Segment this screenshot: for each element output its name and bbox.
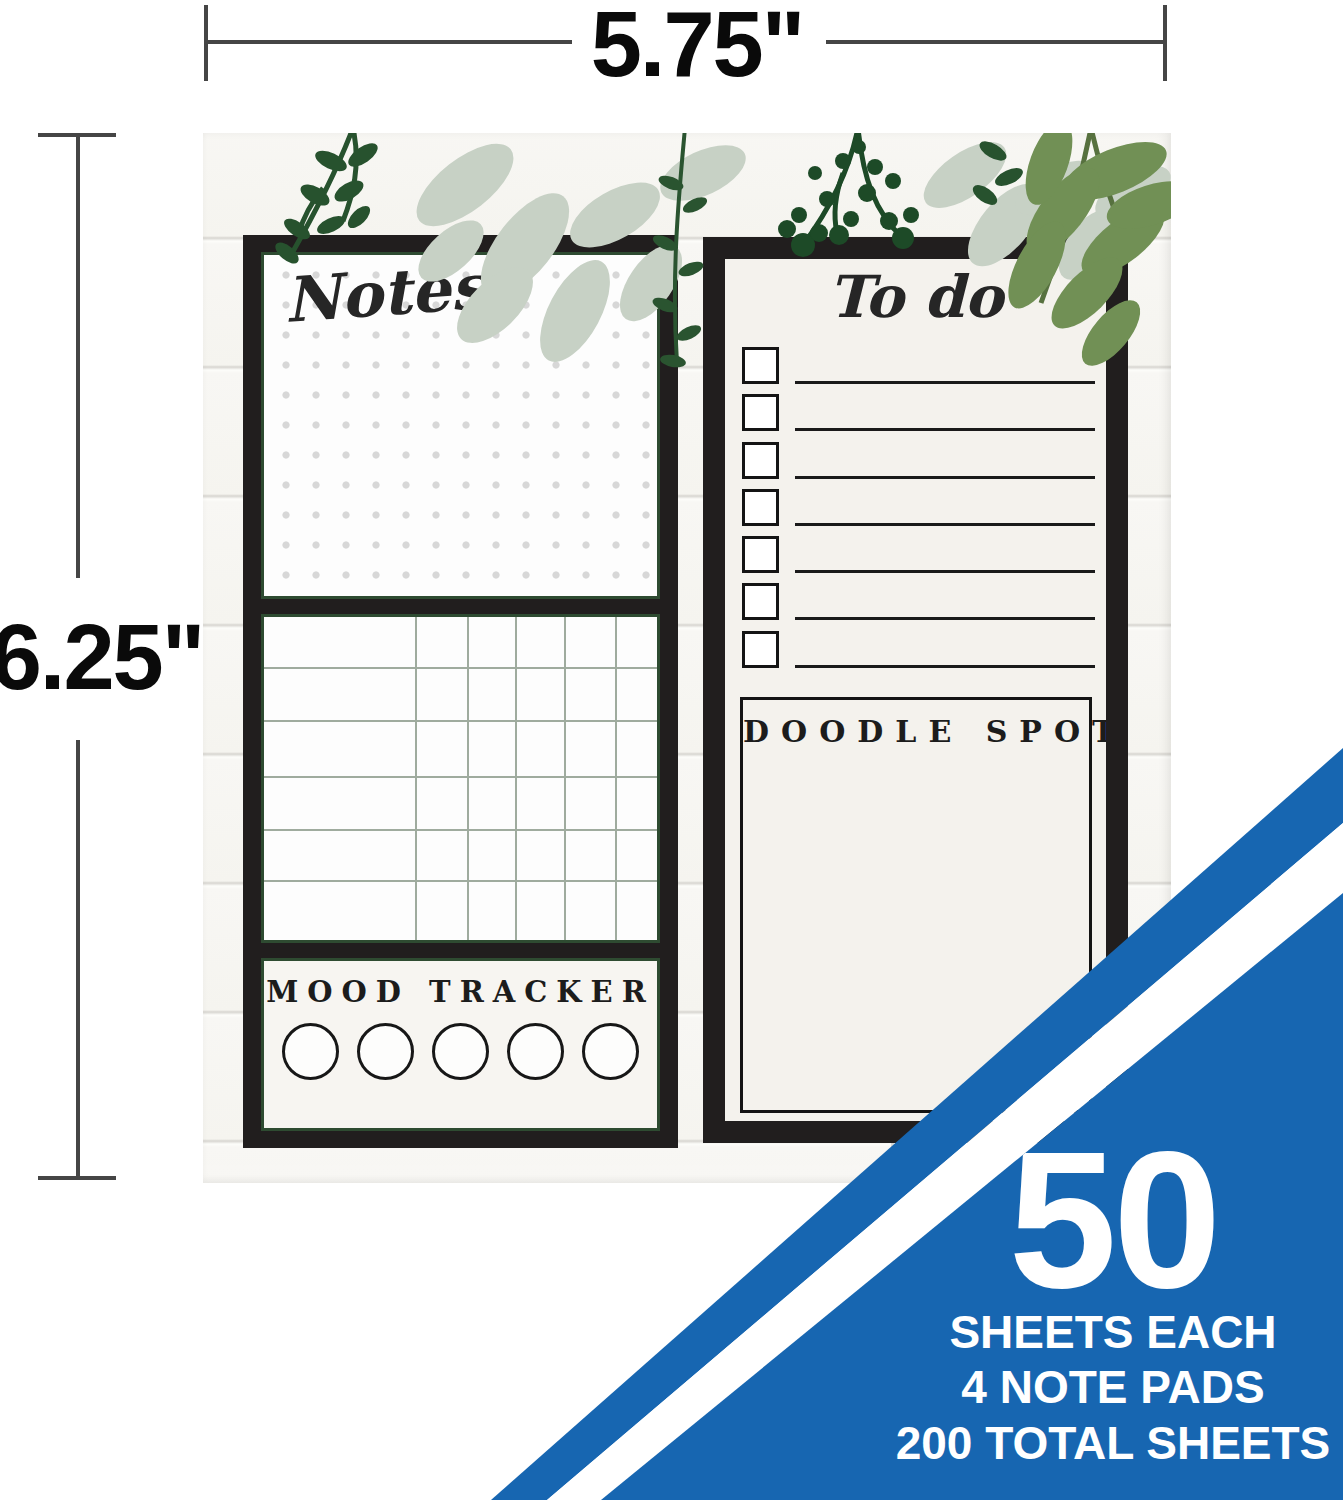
product-image: 5.75" 6.25" Notes MOOD TRACKER To do DOO… <box>0 0 1343 1500</box>
grid-line-vertical <box>564 617 566 940</box>
sage-leaf-cluster-left <box>403 133 754 373</box>
dimension-cap-right <box>1163 5 1167 81</box>
todo-checkbox <box>742 442 779 479</box>
dimension-line <box>826 40 1167 44</box>
dimension-line <box>76 740 80 1179</box>
todo-row <box>725 489 1106 536</box>
mood-circle <box>582 1023 639 1080</box>
todo-row <box>725 536 1106 583</box>
todo-row <box>725 442 1106 489</box>
grid-line-vertical <box>467 617 469 940</box>
todo-write-line <box>795 476 1095 479</box>
todo-checkbox <box>742 489 779 526</box>
beaded-sprig-center-berries <box>778 140 919 257</box>
todo-checkbox <box>742 631 779 668</box>
todo-row <box>725 631 1106 678</box>
dimension-line <box>204 40 572 44</box>
dimension-line <box>76 136 80 578</box>
banner-line-3: 200 TOTAL SHEETS <box>883 1417 1343 1470</box>
todo-checkbox <box>742 536 779 573</box>
todo-checkbox <box>742 583 779 620</box>
greenery-illustration <box>203 133 1171 423</box>
mood-tracker-panel: MOOD TRACKER <box>261 958 660 1131</box>
doodle-spot-title: DOODLE SPOT <box>743 714 1089 749</box>
todo-write-line <box>795 428 1095 431</box>
grid-line-horizontal <box>264 776 657 778</box>
grid-line-vertical <box>415 617 417 940</box>
mood-circle <box>357 1023 414 1080</box>
todo-write-line <box>795 665 1095 668</box>
grid-line-vertical <box>615 617 617 940</box>
dark-sprig-left-leaves <box>272 139 382 268</box>
grid-line-horizontal <box>264 880 657 882</box>
grid-line-horizontal <box>264 667 657 669</box>
todo-write-line <box>795 523 1095 526</box>
height-dimension-label: 6.25" <box>0 605 203 710</box>
width-dimension-label: 5.75" <box>591 0 804 97</box>
todo-write-line <box>795 570 1095 573</box>
grid-line-horizontal <box>264 720 657 722</box>
todo-write-line <box>795 617 1095 620</box>
grid-line-vertical <box>515 617 517 940</box>
banner-line-1: SHEETS EACH <box>883 1306 1343 1359</box>
mood-circle <box>282 1023 339 1080</box>
todo-row <box>725 583 1106 630</box>
mood-circle-row <box>264 1023 657 1080</box>
grid-line-horizontal <box>264 829 657 831</box>
mood-circle <box>507 1023 564 1080</box>
mood-circle <box>432 1023 489 1080</box>
mood-tracker-title: MOOD TRACKER <box>264 975 657 1009</box>
habit-grid-panel <box>261 614 660 943</box>
dimension-cap-bottom <box>38 1176 116 1180</box>
banner-line-2: 4 NOTE PADS <box>883 1361 1343 1414</box>
